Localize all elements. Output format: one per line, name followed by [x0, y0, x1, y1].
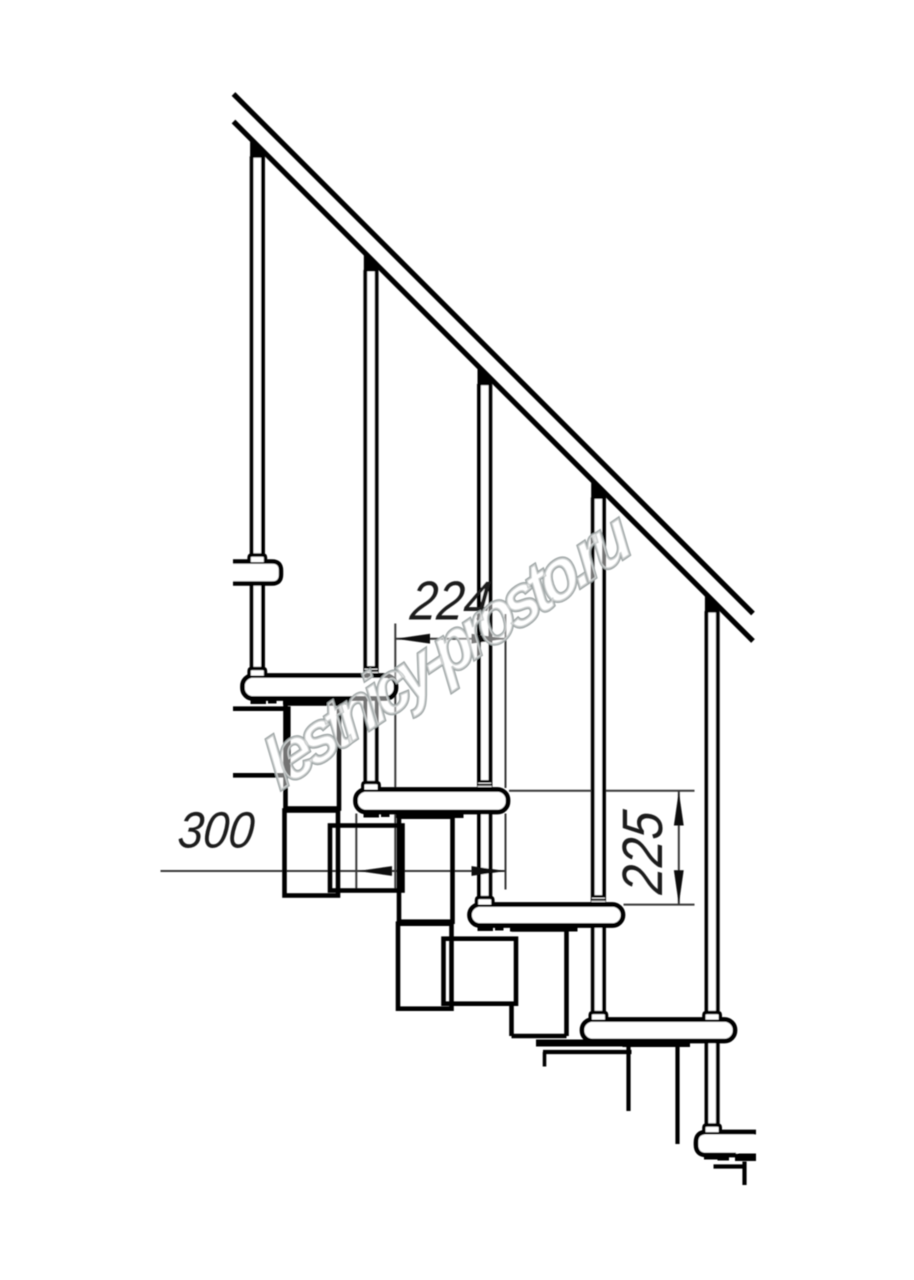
svg-text:225: 225 [612, 808, 675, 898]
svg-text:300: 300 [175, 802, 257, 859]
